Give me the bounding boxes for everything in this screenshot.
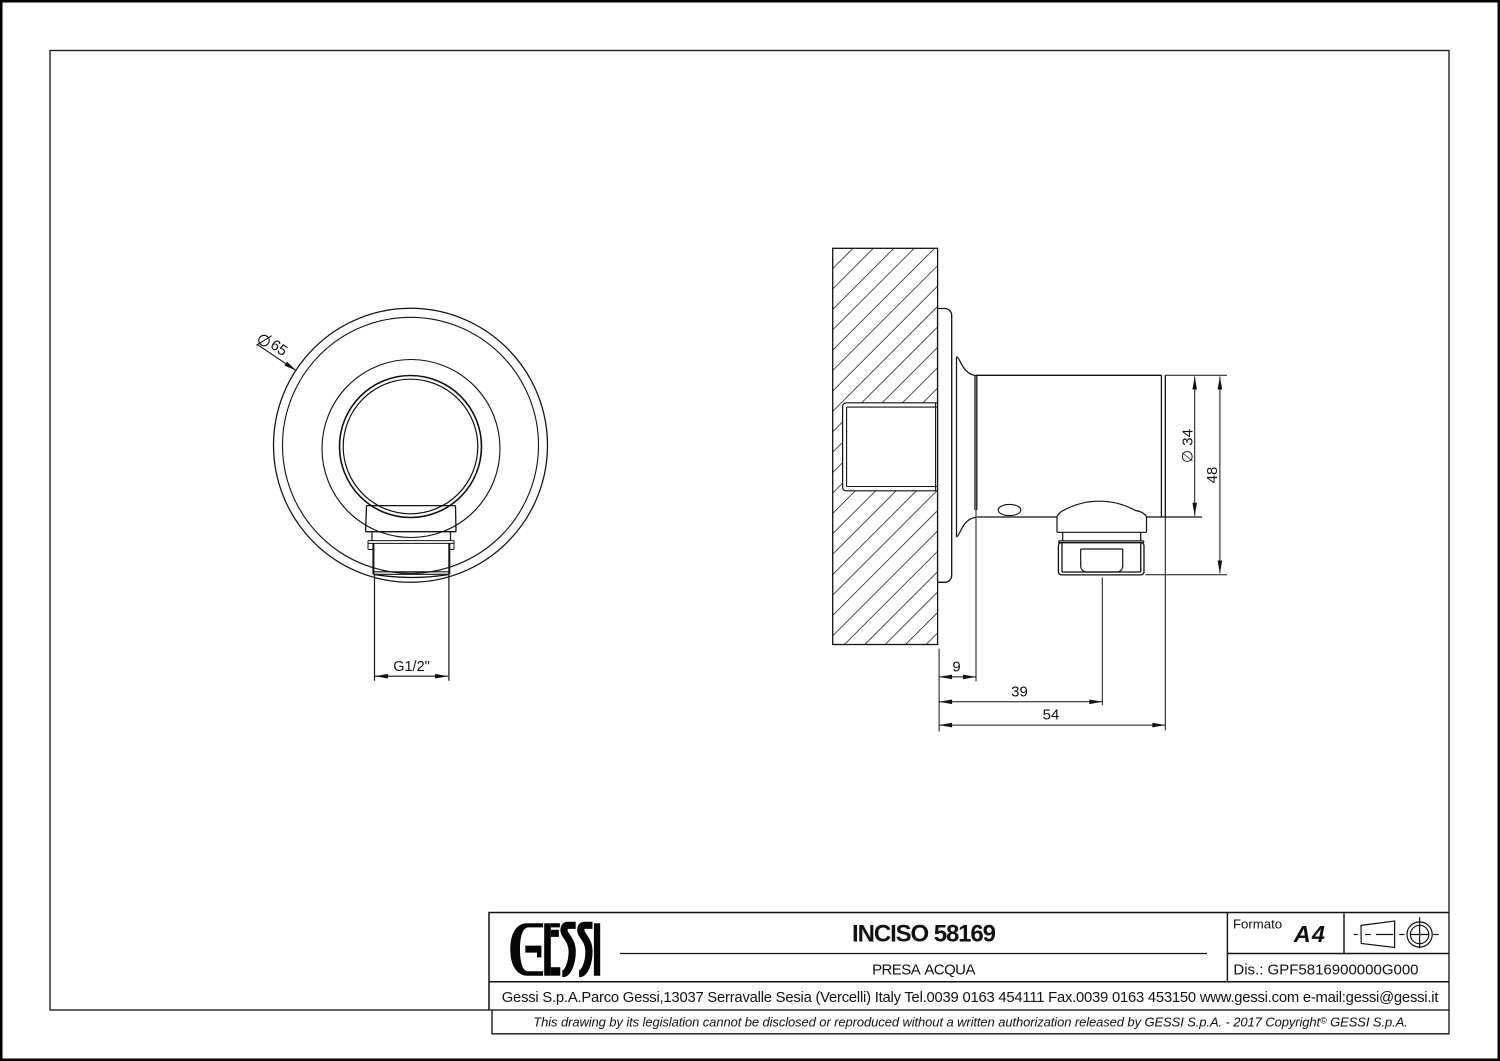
svg-text:Gessi S.p.A.Parco Gessi,13037: Gessi S.p.A.Parco Gessi,13037 Serravalle… [502,990,1439,1006]
svg-text:Dis.: GPF5816900000G000: Dis.: GPF5816900000G000 [1233,962,1418,979]
svg-text:This drawing by its legislatio: This drawing by its legislation cannot b… [533,1014,1407,1029]
svg-text:Formato: Formato [1233,917,1282,932]
svg-text:39: 39 [1011,683,1028,700]
svg-text:54: 54 [1043,707,1060,724]
svg-text:A4: A4 [1293,921,1326,947]
svg-text:∅ 34: ∅ 34 [1180,429,1197,463]
svg-text:INCISO 58169: INCISO 58169 [852,920,996,947]
svg-text:G1/2": G1/2" [393,659,430,675]
svg-text:9: 9 [952,659,960,676]
svg-text:48: 48 [1204,467,1221,484]
svg-text:PRESA ACQUA: PRESA ACQUA [872,962,975,979]
